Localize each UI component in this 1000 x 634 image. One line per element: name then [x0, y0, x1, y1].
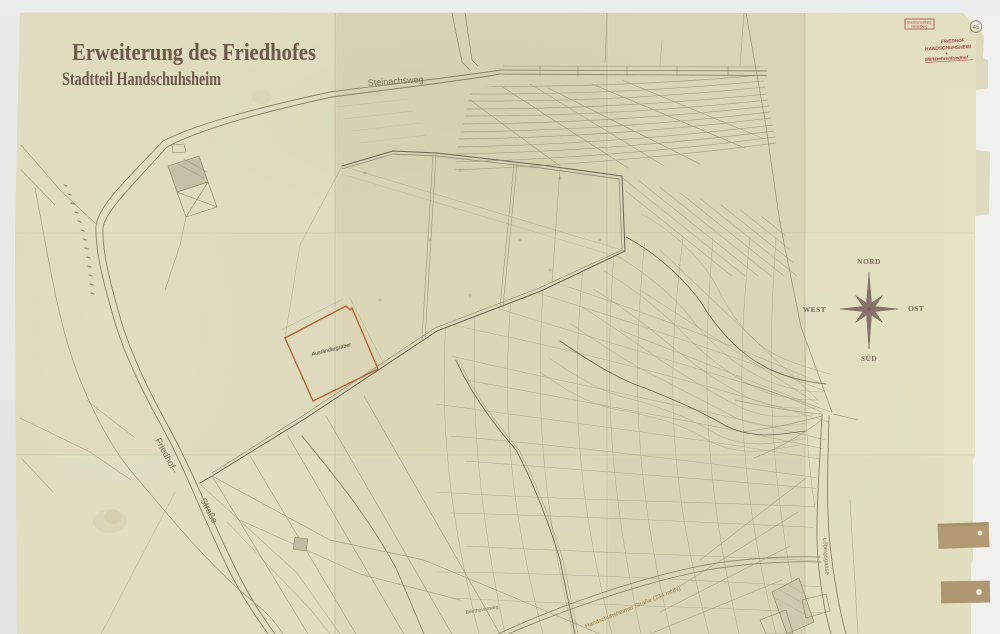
svg-text:Erweiterung des Friedhofes: Erweiterung des Friedhofes: [72, 40, 316, 66]
svg-text:Heidelberg: Heidelberg: [911, 25, 928, 29]
svg-text:NORD: NORD: [857, 257, 881, 266]
svg-text:Stadtteil Handschuhsheim: Stadtteil Handschuhsheim: [62, 69, 221, 90]
svg-text:OST: OST: [908, 304, 924, 313]
svg-text:46: 46: [973, 25, 980, 31]
svg-text:SÜD: SÜD: [861, 354, 877, 363]
svg-text:WEST: WEST: [803, 305, 826, 314]
